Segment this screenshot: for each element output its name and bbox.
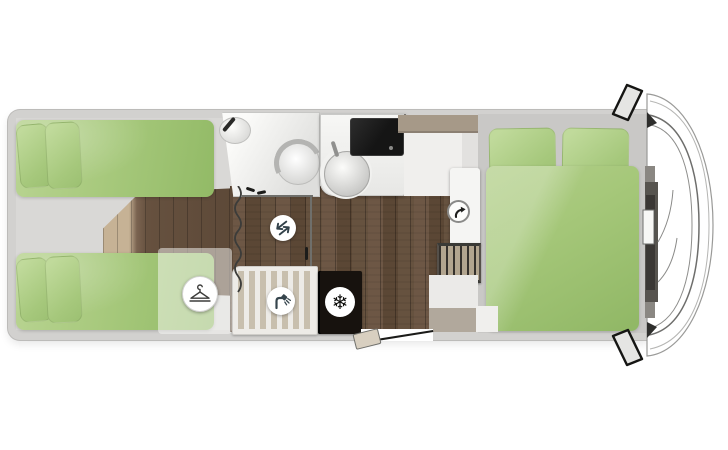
hanger-icon [188, 284, 212, 304]
motorhome-floorplan: ❄ [0, 0, 728, 450]
low-cabinet [429, 275, 478, 312]
hob-knob [389, 146, 393, 150]
bed-foot-panel [476, 306, 498, 332]
rear-bed-pillow [44, 255, 82, 324]
toilet [276, 141, 320, 185]
wing-mirror-right [613, 330, 642, 365]
door-handle [305, 247, 308, 260]
rear-bed-pillow [44, 121, 82, 190]
bed-foot-bench [429, 308, 476, 332]
kitchen-sink [324, 151, 370, 197]
shower-head-icon [271, 291, 291, 311]
swivel-icon [447, 200, 470, 223]
cab-console [643, 210, 654, 244]
cab-seat [645, 302, 655, 318]
shower-icon [267, 287, 295, 315]
cab-seat [645, 166, 655, 182]
pleated-curtain [230, 186, 246, 296]
swap-arrows-icon [273, 218, 293, 238]
driver-cab [596, 70, 728, 380]
door-swing-icon [270, 215, 296, 241]
rotate-arrow-icon [451, 204, 467, 220]
wardrobe-hanger-icon [182, 276, 218, 312]
bathroom-door-rail [242, 195, 313, 197]
wing-mirror-left [613, 85, 642, 120]
snowflake-icon: ❄ [325, 287, 355, 317]
hob [350, 118, 404, 156]
